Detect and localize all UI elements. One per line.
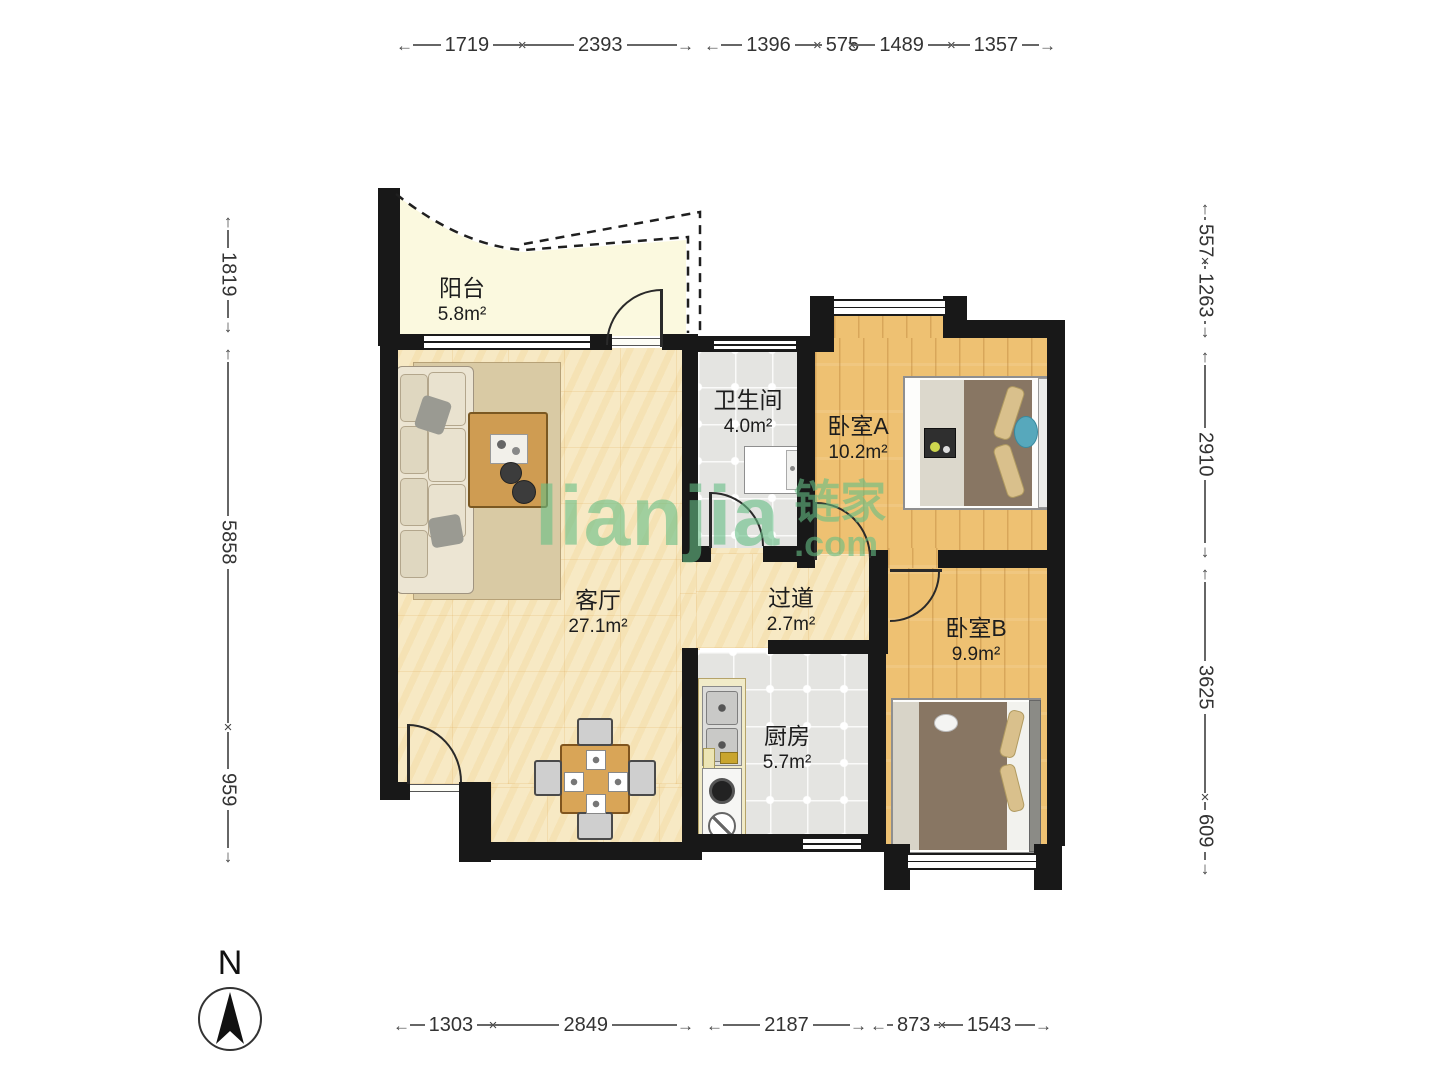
wall xyxy=(380,334,398,784)
dimension-arrow: → xyxy=(1039,37,1056,54)
floorplan-page: 阳台 5.8m² 卫生间 4.0m² 卧室A 10.2m² 客厅 27.1m² … xyxy=(0,0,1440,1080)
bathroom-vanity-knob xyxy=(790,466,795,471)
dimension-segment: 1489 xyxy=(853,34,950,57)
dimension-segment: 1263 xyxy=(1194,266,1217,324)
dimension-chain: ↑3625×609↓ xyxy=(1192,565,1218,877)
dinner-plate xyxy=(564,772,584,792)
dimension-value: 2187 xyxy=(760,1014,813,1037)
bathroom-door-leaf xyxy=(709,492,712,548)
dimension-chain: ←2187→ xyxy=(706,1012,867,1038)
bedroom-a-cushion xyxy=(1014,416,1038,448)
wall xyxy=(380,782,410,800)
dimension-value: 2910 xyxy=(1194,428,1217,481)
dimension-value: 959 xyxy=(217,769,240,810)
dimension-value: 873 xyxy=(893,1014,934,1037)
dimension-chain: ←1719×2393→ xyxy=(396,32,694,58)
bedroom-b-bay-window xyxy=(908,853,1036,870)
wall xyxy=(682,648,698,844)
bedroom-a-bay-window xyxy=(834,299,945,316)
dimension-value: 1263 xyxy=(1194,269,1217,322)
compass-needle-icon xyxy=(200,989,260,1049)
dimension-segment: 1303 xyxy=(410,1014,492,1037)
kitchen-sink-basin xyxy=(706,691,738,725)
dimension-arrow: ← xyxy=(706,1017,723,1034)
dimension-chain: ←1396×575×1489×1357→ xyxy=(704,32,1056,58)
dimension-segment: 609 xyxy=(1194,802,1217,860)
dimension-arrow: ← xyxy=(870,1017,887,1034)
dimension-arrow: ↓ xyxy=(1201,323,1210,340)
wall xyxy=(459,782,491,862)
wall xyxy=(662,334,684,350)
dimension-chain: ↑557×1263↓ xyxy=(1192,200,1218,340)
stove-burner xyxy=(709,778,735,804)
balcony-door-swing xyxy=(606,289,662,345)
dimension-chain: ↑1819↓ xyxy=(215,213,241,335)
bedroom-a-tray-dot xyxy=(943,446,950,453)
wall xyxy=(768,640,870,654)
dimension-arrow: → xyxy=(850,1017,867,1034)
coffee-table-cup xyxy=(512,447,520,455)
dimension-segment: 557 xyxy=(1194,217,1217,257)
sofa-back-cushion xyxy=(400,530,428,578)
dimension-arrow: ← xyxy=(393,1017,410,1034)
dimension-segment: 1357 xyxy=(953,34,1039,57)
sofa-pillow xyxy=(428,513,465,548)
room-name: 过道 xyxy=(726,584,856,613)
bedroom-a-tray-dot xyxy=(930,442,940,452)
dimension-value: 2393 xyxy=(574,34,627,57)
dimension-segment: 2910 xyxy=(1194,365,1217,543)
dimension-segment: 575 xyxy=(819,34,851,57)
room-name: 卧室A xyxy=(793,412,923,441)
dimension-chain: ←1303×2849→ xyxy=(393,1012,694,1038)
wall xyxy=(1047,322,1065,846)
dimension-arrow: → xyxy=(677,37,694,54)
balcony-door-leaf xyxy=(660,289,663,347)
bedroom-b-blanket xyxy=(919,702,1007,850)
dimension-arrow: → xyxy=(677,1017,694,1034)
wall xyxy=(810,296,834,338)
dinner-plate xyxy=(586,794,606,814)
dimension-value: 1819 xyxy=(217,248,240,301)
dinner-plate xyxy=(608,772,628,792)
coffee-table-bowl xyxy=(512,480,536,504)
dimension-segment: 1819 xyxy=(217,230,240,318)
room-label-balcony: 阳台 5.8m² xyxy=(397,274,527,327)
bathroom-window xyxy=(714,339,796,351)
room-area: 5.7m² xyxy=(722,751,852,775)
wall xyxy=(1034,844,1062,890)
room-label-kitchen: 厨房 5.7m² xyxy=(722,722,852,775)
dimension-chain: ↑2910↓ xyxy=(1192,348,1218,560)
compass-circle xyxy=(198,987,262,1051)
dimension-segment: 959 xyxy=(217,732,240,849)
dimension-arrow: ← xyxy=(396,37,413,54)
bedroom-a-tray xyxy=(924,428,956,458)
dimension-arrow: ↑ xyxy=(1201,565,1210,582)
north-label: N xyxy=(196,944,264,983)
dimension-value: 1489 xyxy=(875,34,928,57)
dimension-arrow: ↑ xyxy=(1201,200,1210,217)
wall xyxy=(868,648,886,852)
room-label-bedroom-b: 卧室B 9.9m² xyxy=(911,614,1041,667)
bedroom-b-door-leaf xyxy=(890,569,942,572)
dimension-segment: 3625 xyxy=(1194,582,1217,793)
room-name: 卧室B xyxy=(911,614,1041,643)
room-area: 10.2m² xyxy=(793,441,923,465)
floorplan: 阳台 5.8m² 卫生间 4.0m² 卧室A 10.2m² 客厅 27.1m² … xyxy=(0,0,1440,1080)
dimension-value: 1396 xyxy=(742,34,795,57)
bedroom-b-headboard xyxy=(1029,700,1041,852)
dimension-value: 609 xyxy=(1194,810,1217,851)
dimension-value: 1543 xyxy=(963,1014,1016,1037)
dimension-segment: 1719 xyxy=(413,34,521,57)
dimension-segment: 2849 xyxy=(494,1014,677,1037)
bedroom-a-door-leaf xyxy=(814,502,817,560)
dimension-arrow: ↓ xyxy=(224,318,233,335)
wall xyxy=(398,334,426,350)
dimension-chain: ←873×1543→ xyxy=(870,1012,1052,1038)
dimension-arrow: ↑ xyxy=(1201,348,1210,365)
bedroom-b-cushion xyxy=(934,714,958,732)
dimension-arrow: ↑ xyxy=(224,345,233,362)
sofa-back-cushion xyxy=(400,478,428,526)
wall xyxy=(884,844,910,890)
room-name: 卫生间 xyxy=(683,386,813,415)
dinner-plate xyxy=(586,750,606,770)
room-label-bedroom-a: 卧室A 10.2m² xyxy=(793,412,923,465)
sofa-back-cushion xyxy=(400,426,428,474)
dining-chair xyxy=(577,718,613,746)
dining-chair xyxy=(577,812,613,840)
wall xyxy=(763,546,797,562)
coffee-table-cup xyxy=(497,440,506,449)
dimension-segment: 1543 xyxy=(943,1014,1035,1037)
dimension-segment: 5858 xyxy=(217,362,240,723)
kitchen-window xyxy=(803,837,861,851)
dimension-value: 2849 xyxy=(559,1014,612,1037)
bedroom-b-door-patch xyxy=(888,548,940,568)
dining-chair xyxy=(628,760,656,796)
room-area: 27.1m² xyxy=(533,615,663,639)
dimension-value: 1303 xyxy=(425,1014,478,1037)
dimension-value: 5858 xyxy=(217,516,240,569)
dimension-arrow: → xyxy=(1035,1017,1052,1034)
wall xyxy=(682,334,698,560)
dimension-segment: 2187 xyxy=(723,1014,850,1037)
room-area: 2.7m² xyxy=(726,613,856,637)
dimension-arrow: ↓ xyxy=(224,848,233,865)
north-compass: N xyxy=(196,944,264,1051)
dimension-arrow: ↓ xyxy=(1201,543,1210,560)
entrance-door-leaf xyxy=(407,724,410,784)
room-name: 阳台 xyxy=(397,274,527,303)
dimension-arrow: ↓ xyxy=(1201,860,1210,877)
bedroom-b-bed-runner xyxy=(893,702,919,850)
dimension-segment: 1396 xyxy=(721,34,816,57)
entrance-door-sill xyxy=(410,784,459,792)
dimension-value: 1357 xyxy=(970,34,1023,57)
room-area: 5.8m² xyxy=(397,303,527,327)
dimension-segment: 2393 xyxy=(524,34,677,57)
room-label-hallway: 过道 2.7m² xyxy=(726,584,856,637)
room-name: 客厅 xyxy=(533,586,663,615)
room-area: 9.9m² xyxy=(911,643,1041,667)
room-label-living-room: 客厅 27.1m² xyxy=(533,586,663,639)
wall xyxy=(682,546,711,562)
room-name: 厨房 xyxy=(722,722,852,751)
dimension-value: 1719 xyxy=(441,34,494,57)
sofa-seat-cushion xyxy=(428,428,466,482)
wall xyxy=(491,842,702,860)
dimension-value: 3625 xyxy=(1194,661,1217,714)
dimension-segment: 873 xyxy=(887,1014,940,1037)
dimension-chain: ↑5858×959↓ xyxy=(215,345,241,865)
dimension-arrow: ← xyxy=(704,37,721,54)
balcony-window xyxy=(424,334,590,350)
wall xyxy=(869,550,888,654)
coffee-table-tray xyxy=(490,434,528,464)
dimension-arrow: ↑ xyxy=(224,213,233,230)
wall xyxy=(938,550,1049,568)
dining-chair xyxy=(534,760,562,796)
